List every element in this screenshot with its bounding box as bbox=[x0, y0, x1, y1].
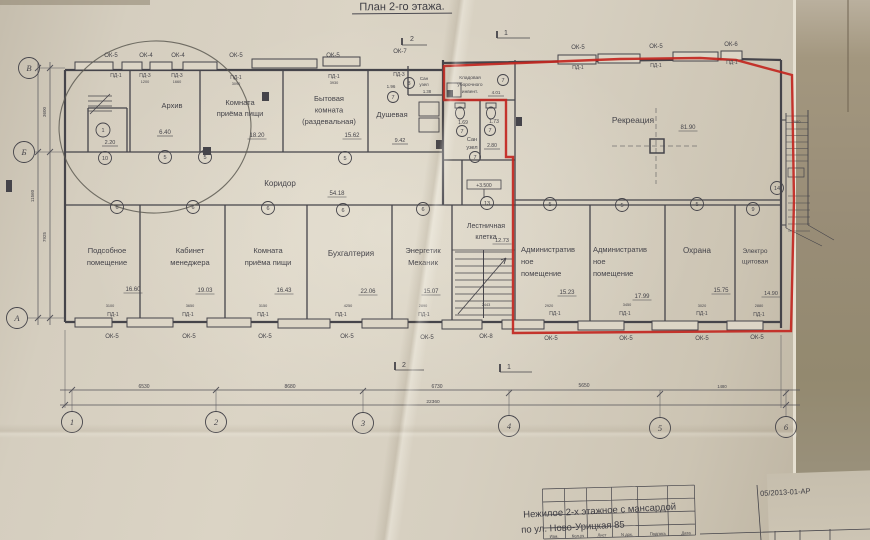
wall-marker-label: 8 bbox=[407, 81, 410, 87]
plan-tag: ПД-1 bbox=[753, 312, 765, 318]
wall-marker-label: 5 bbox=[695, 202, 698, 208]
room-area: 4.01 bbox=[492, 90, 501, 95]
axis-bubble-label: 2 bbox=[214, 417, 219, 427]
plan-tag: ПД-1 bbox=[110, 73, 122, 79]
room-label: комната bbox=[315, 106, 344, 115]
plan-tag: ПД-1 bbox=[650, 63, 662, 69]
plan-tag: ОК-5 bbox=[105, 334, 119, 340]
stamp-column-header: Кол.уч bbox=[565, 533, 591, 539]
plan-tag: 2920 bbox=[545, 304, 553, 308]
room-label: Бухгалтерия bbox=[328, 249, 374, 258]
plan-tag: 1 bbox=[507, 364, 511, 371]
plan-tag: ПД-1 bbox=[696, 311, 708, 317]
room-label: Кладовая bbox=[459, 75, 481, 81]
axis-bubble-label: 4 bbox=[507, 421, 512, 431]
axis-bubble-label: 3 bbox=[360, 418, 365, 428]
plan-tag: 1200 bbox=[141, 80, 149, 84]
wall-marker-label: 7 bbox=[501, 78, 504, 84]
plan-tag: ОК-5 bbox=[258, 334, 272, 340]
room-area: 12.73 bbox=[495, 238, 509, 244]
entry-stair bbox=[88, 94, 112, 114]
room-label: приёма пищи bbox=[217, 109, 264, 118]
axis-bubble-label: 5 bbox=[658, 423, 662, 433]
room-area: 2.80 bbox=[487, 143, 497, 149]
wall-marker-label: 6 bbox=[421, 207, 424, 213]
room-label: Энергетик bbox=[405, 246, 441, 255]
plan-tag: Сан bbox=[420, 76, 429, 81]
wall-marker-label: 6 bbox=[191, 205, 194, 211]
plan-tag: 2 bbox=[402, 362, 406, 369]
plan-tag: ОК-5 bbox=[695, 336, 709, 342]
room-label: Комната bbox=[225, 98, 255, 107]
plan-tag: ОК-5 bbox=[544, 336, 558, 342]
plan-tag: 1480 bbox=[717, 384, 727, 389]
plan-tag: ПД-1 bbox=[335, 312, 347, 318]
plan-tag: 2890 bbox=[419, 304, 427, 308]
floor-plan-photo: ОК-5ОК-4ОК-4ОК-5ОК-5ОК-7ОК-5ОК-5ОК-6ПД-1… bbox=[0, 0, 870, 540]
plan-tag: 3020 bbox=[698, 304, 706, 308]
wall-marker-label: 5 bbox=[203, 155, 206, 161]
room-label: менеджера bbox=[170, 258, 210, 267]
plan-tag: ПД-1 bbox=[328, 74, 340, 80]
plan-tag: ПД-1 bbox=[230, 75, 242, 81]
dimension-lines bbox=[28, 62, 800, 418]
room-area: 15.75 bbox=[713, 288, 729, 294]
plan-tag: ПД-1 bbox=[257, 312, 269, 318]
plan-tag: 22360 bbox=[426, 399, 440, 405]
walls-interior bbox=[65, 60, 781, 322]
room-label: узел bbox=[466, 145, 477, 151]
plan-tag: ОК-7 bbox=[393, 49, 407, 55]
plan-tag: ОК-4 bbox=[139, 53, 153, 59]
plan-tag: 1660 bbox=[173, 80, 181, 84]
room-area: 6.40 bbox=[159, 130, 171, 136]
plan-tag: ОК-8 bbox=[479, 334, 493, 340]
plan-tag: 1.69 bbox=[458, 120, 468, 126]
room-label: помещение bbox=[87, 258, 127, 267]
room-label: помещение bbox=[593, 269, 633, 278]
room-label: инвент. bbox=[462, 90, 478, 95]
plan-tag: ОК-5 bbox=[229, 53, 243, 59]
walls-exterior bbox=[65, 59, 781, 328]
room-label: Душевая bbox=[376, 110, 407, 119]
plan-tag: 3450 bbox=[623, 303, 631, 307]
axis-bubble-label: 1 bbox=[70, 417, 74, 427]
room-area: 15.23 bbox=[559, 290, 575, 296]
room-area: 19.03 bbox=[197, 288, 213, 294]
room-label: ное bbox=[593, 257, 605, 266]
room-area: 18.20 bbox=[249, 133, 265, 139]
plan-tag: ОК-5 bbox=[571, 45, 585, 51]
plan-tag: ПД-1 bbox=[418, 312, 430, 318]
room-area: 2.20 bbox=[105, 140, 116, 146]
room-label: приёма пищи bbox=[245, 258, 292, 267]
staircase bbox=[452, 250, 515, 318]
plan-tag: 3100 bbox=[106, 304, 114, 308]
plan-tag: 3090 bbox=[232, 82, 240, 86]
stamp-column-header: Изм. bbox=[543, 534, 565, 540]
room-area: 15.62 bbox=[344, 133, 360, 139]
wall-marker-label: 6 bbox=[266, 206, 269, 212]
wall-marker-label: 1 bbox=[101, 128, 104, 134]
plan-tag: 4250 bbox=[344, 304, 352, 308]
room-area: 16.60 bbox=[125, 287, 141, 293]
plan-tag: ОК-4 bbox=[171, 53, 185, 59]
room-label: Рекреация bbox=[612, 115, 655, 125]
room-area: 22.06 bbox=[360, 289, 376, 295]
room-label: Сан bbox=[467, 137, 477, 143]
stamp-column-header: Лист bbox=[591, 532, 613, 538]
room-area: 16.43 bbox=[276, 288, 292, 294]
axis-bubble-label: Б bbox=[20, 147, 26, 157]
room-label: ное bbox=[521, 257, 533, 266]
plan-tag: ОК-5 bbox=[326, 53, 340, 59]
plan-tag: ОК-5 bbox=[619, 336, 633, 342]
plan-tag: 6530 bbox=[138, 384, 149, 390]
room-label: уборочного bbox=[457, 82, 483, 88]
plan-tag: ПД-1 bbox=[572, 65, 584, 71]
plan-tag: 7925 bbox=[42, 231, 47, 242]
wall-marker-label: 7 bbox=[473, 155, 476, 161]
plan-tag: ПД-1 bbox=[182, 312, 194, 318]
plan-tag: 1 bbox=[504, 30, 508, 37]
plan-tag: ПД-1 bbox=[619, 311, 631, 317]
wall-marker-label: 7 bbox=[391, 95, 394, 101]
room-label: Коридор bbox=[264, 179, 296, 188]
plan-tag: ОК-5 bbox=[420, 335, 434, 341]
windows bbox=[75, 51, 763, 330]
stamp-column-header: Подпись bbox=[641, 531, 675, 537]
room-area: 81.90 bbox=[680, 125, 696, 131]
plan-tag: 1.38 bbox=[423, 89, 432, 94]
plan-tag: ПД-3 bbox=[139, 73, 151, 79]
room-label: Комната bbox=[253, 246, 283, 255]
plan-tag: 1.96 bbox=[387, 84, 396, 89]
plan-tag: ОК-5 bbox=[182, 334, 196, 340]
external-stair bbox=[781, 110, 834, 246]
room-label: Архив bbox=[161, 101, 182, 110]
wall-marker-label: 10 bbox=[102, 156, 108, 162]
red-markup-outline bbox=[444, 58, 794, 333]
axis-bubble-label: А bbox=[13, 313, 20, 323]
stamp-column-header: Дата bbox=[675, 530, 697, 536]
axis-bubble-label: В bbox=[26, 63, 31, 73]
plan-tag: ПД-1 bbox=[726, 60, 738, 66]
plan-tag: 3600 bbox=[42, 106, 47, 117]
wall-marker-label: 13 bbox=[484, 201, 490, 207]
room-label: Лестничная bbox=[467, 223, 505, 230]
floor-plan-svg: ОК-5ОК-4ОК-4ОК-5ОК-5ОК-7ОК-5ОК-5ОК-6ПД-1… bbox=[0, 0, 870, 540]
plan-tag: ПД-3 bbox=[171, 73, 183, 79]
room-label: Подсобное bbox=[88, 246, 127, 255]
plan-tag: ПД-3 bbox=[393, 72, 405, 78]
wall-marker-label: 14 bbox=[774, 186, 780, 192]
room-area: 15.07 bbox=[423, 289, 439, 295]
room-label: Механик bbox=[408, 258, 439, 267]
plan-tag: +3.500 bbox=[476, 183, 492, 189]
wall-marker-label: 6 bbox=[341, 208, 344, 214]
plan-tag: 2 bbox=[410, 36, 414, 43]
plan-tag: 2980 bbox=[792, 119, 802, 124]
plan-tag: ПД-1 bbox=[549, 311, 561, 317]
room-area: 14.90 bbox=[764, 291, 778, 297]
plan-tag: узел bbox=[419, 82, 429, 87]
plan-tag: ОК-5 bbox=[340, 334, 354, 340]
stamp-column-header: N док. bbox=[613, 532, 641, 538]
plan-tag: ОК-5 bbox=[104, 53, 118, 59]
wall-marker-label: 7 bbox=[460, 129, 463, 135]
plan-tag: 2443 bbox=[482, 303, 490, 307]
room-label: (раздевальная) bbox=[302, 117, 356, 126]
plan-tag: 3930 bbox=[330, 81, 338, 85]
wall-marker-label: 7 bbox=[488, 128, 491, 134]
plan-tag: 8680 bbox=[284, 384, 295, 390]
plan-tag: ОК-6 bbox=[724, 42, 738, 48]
plan-tag: ПД-1 bbox=[107, 312, 119, 318]
plan-tag: ОК-5 bbox=[750, 335, 764, 341]
plan-tag: ОК-5 bbox=[649, 44, 663, 50]
room-label: Электро bbox=[743, 248, 768, 255]
room-label: клетка bbox=[475, 234, 496, 241]
room-label: Административ bbox=[593, 245, 647, 254]
wall-marker-label: 6 bbox=[115, 205, 118, 211]
room-label: помещение bbox=[521, 269, 561, 278]
plan-tag: 2880 bbox=[755, 304, 763, 308]
room-label: Охрана bbox=[683, 246, 711, 255]
room-area: 9.42 bbox=[395, 138, 406, 144]
axis-bubble-label: 6 bbox=[784, 422, 789, 432]
wall-marker-label: 5 bbox=[548, 202, 551, 208]
plan-tag: 5650 bbox=[578, 383, 589, 389]
plan-tag: 6730 bbox=[431, 384, 442, 390]
plan-tag: 3650 bbox=[186, 304, 194, 308]
plan-tag: 3150 bbox=[259, 304, 267, 308]
wall-marker-label: 5 bbox=[163, 155, 166, 161]
room-label: Кабинет bbox=[176, 246, 205, 255]
room-area: 17.99 bbox=[634, 294, 650, 300]
room-area: 54.18 bbox=[329, 191, 345, 197]
plan-title: План 2-го этажа. bbox=[352, 1, 452, 15]
room-label: Административ bbox=[521, 245, 575, 254]
plan-tag: 11560 bbox=[30, 189, 35, 202]
door-fills bbox=[6, 90, 522, 192]
room-label: Бытовая bbox=[314, 94, 344, 103]
room-label: щитовая bbox=[742, 259, 768, 266]
wall-marker-label: 5 bbox=[620, 203, 623, 209]
wall-marker-label: 5 bbox=[343, 156, 346, 162]
wall-marker-label: 9 bbox=[751, 207, 754, 213]
